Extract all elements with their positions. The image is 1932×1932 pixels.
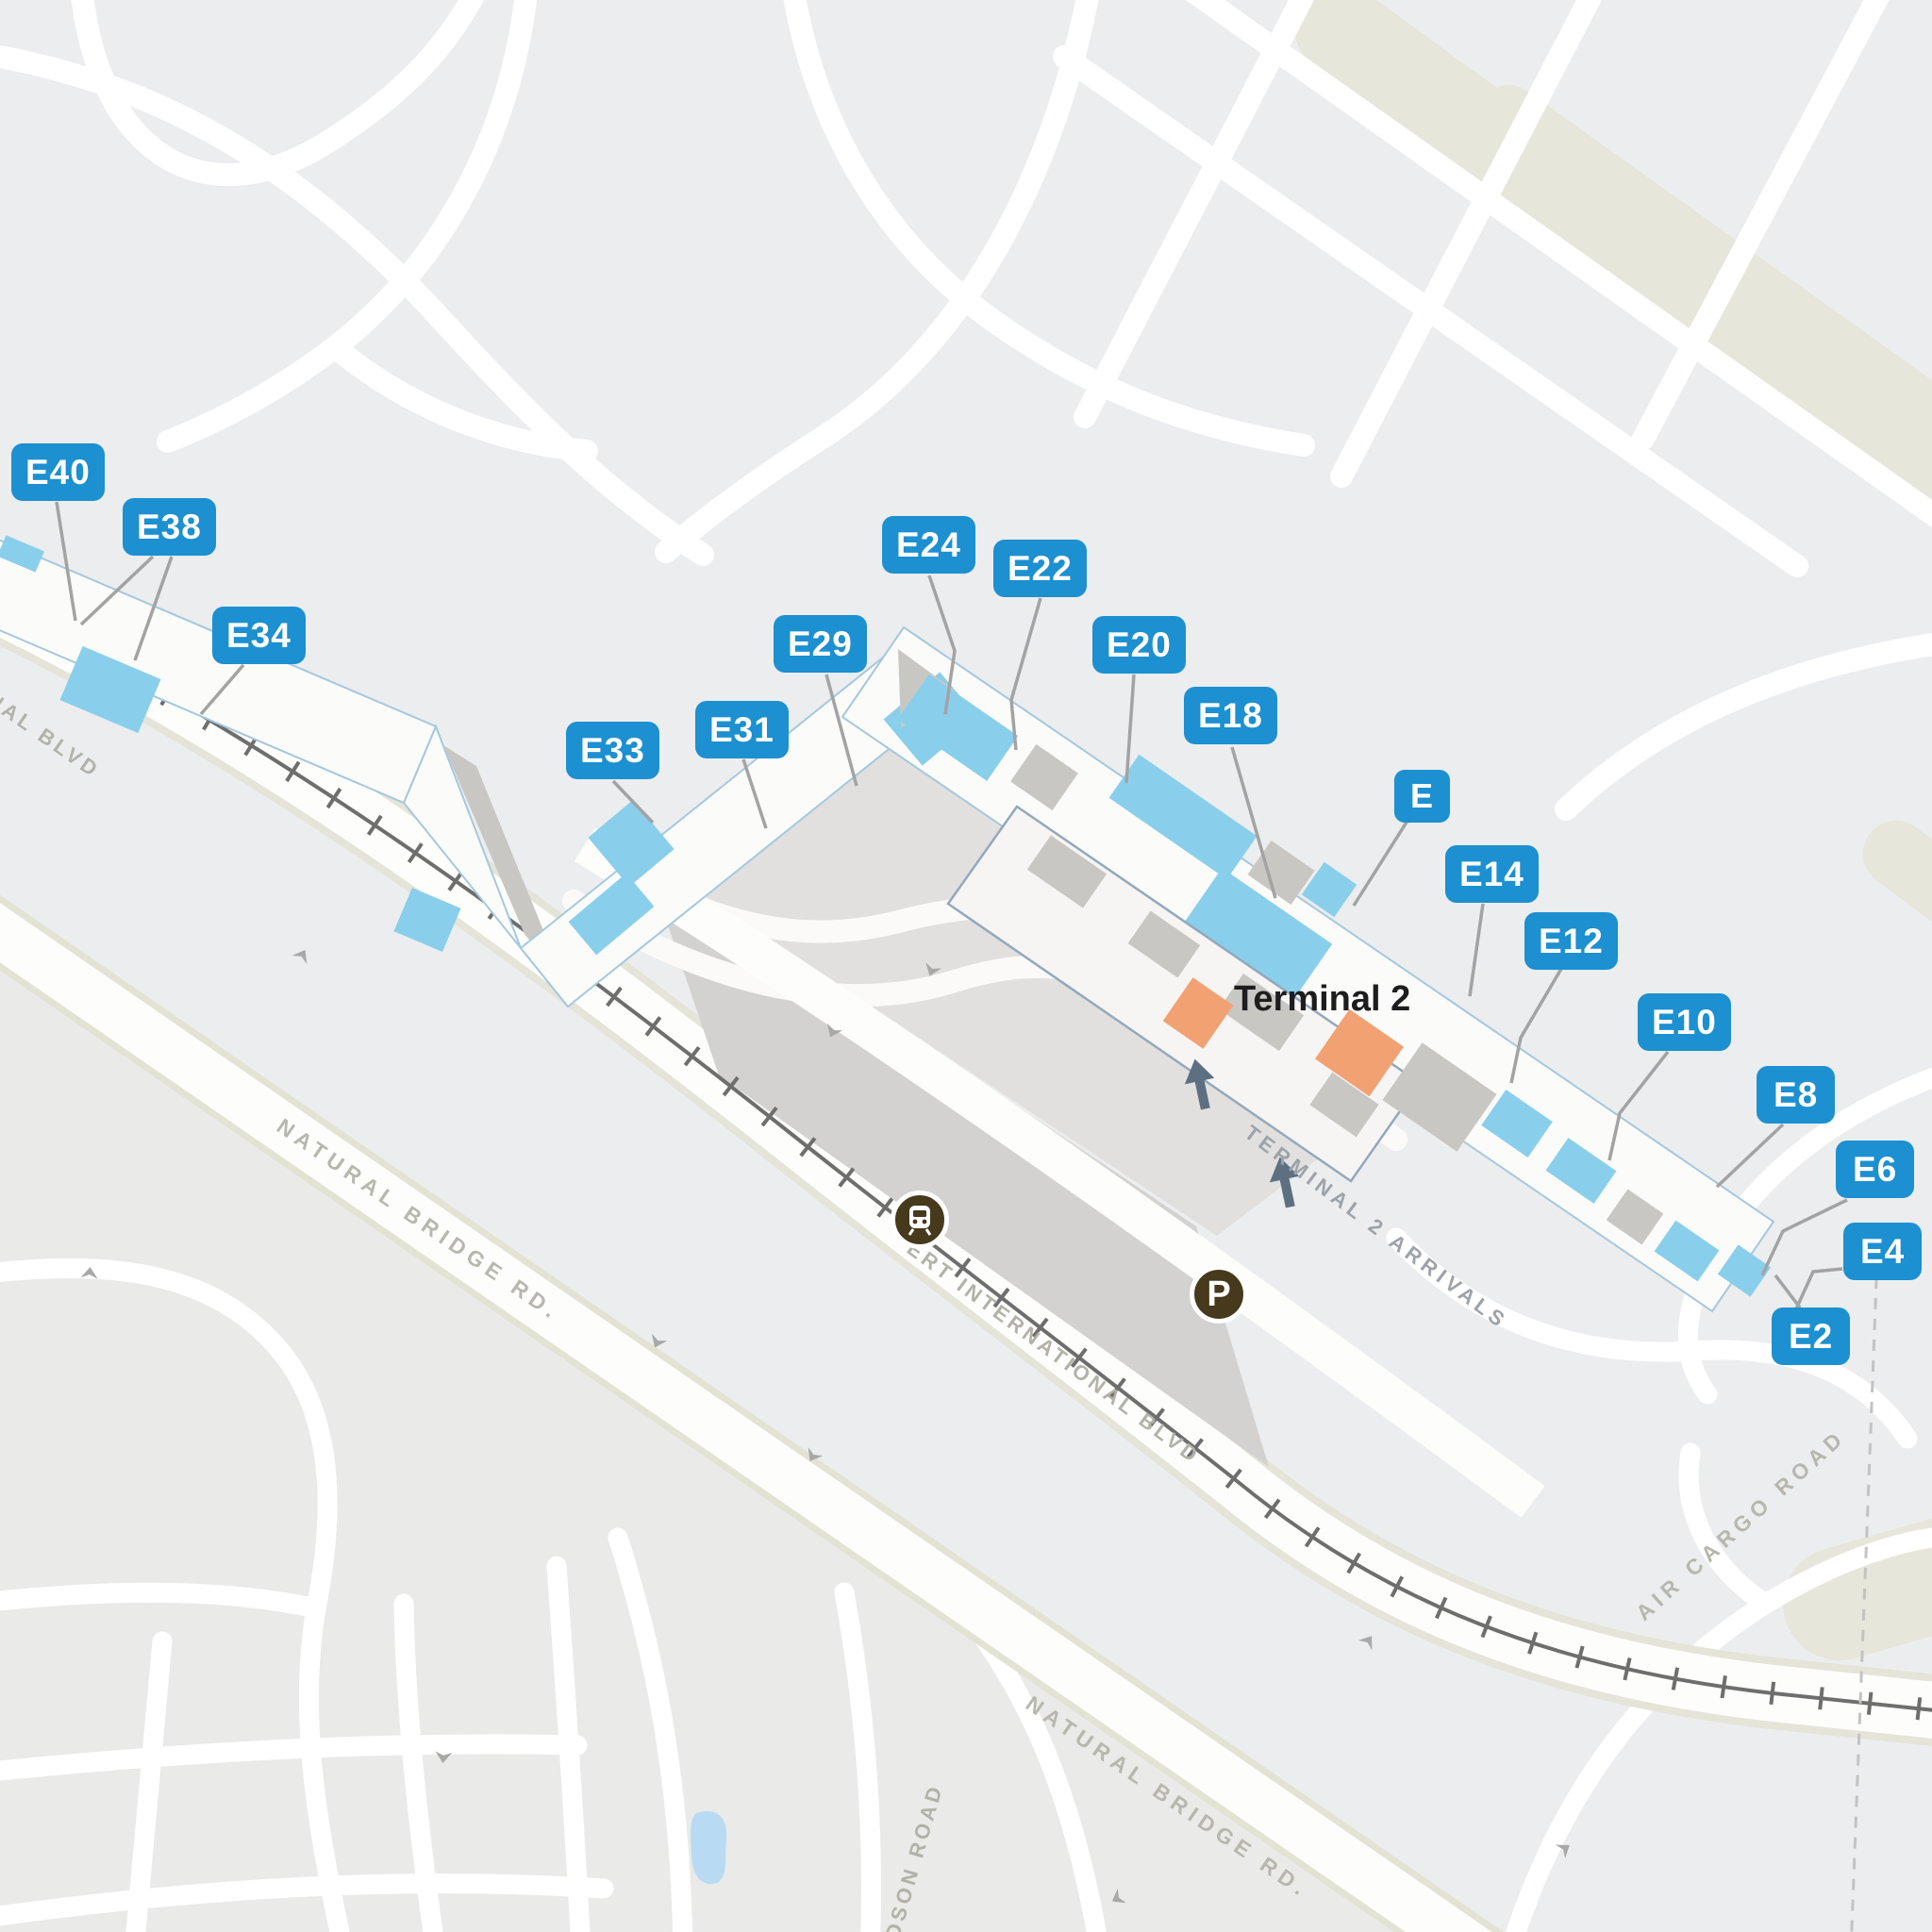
train-glyph [903,1203,937,1237]
gate-badge-e18: E18 [1184,687,1277,744]
gate-badge-e24: E24 [882,516,975,574]
gate-badge-e10: E10 [1638,993,1731,1051]
gate-badge-e2: E2 [1772,1307,1850,1365]
gate-badge-e12: E12 [1524,912,1618,970]
terminal-2-label: Terminal 2 [1234,979,1410,1020]
parking-letter: P [1207,1276,1230,1312]
gate-badge-e6: E6 [1836,1141,1914,1198]
gate-badge-e22: E22 [993,540,1087,597]
train-station-icon [891,1191,949,1249]
gate-badge-e20: E20 [1092,616,1186,674]
gate-badge-e34: E34 [212,607,306,664]
gate-badge-e29: E29 [774,615,867,673]
gate-badge-e8: E8 [1757,1066,1835,1124]
gate-badge-e38: E38 [123,498,216,556]
map-artwork [0,0,1932,1932]
gate-badge-e4: E4 [1843,1223,1922,1280]
parking-icon: P [1190,1265,1248,1324]
gate-badge-e33: E33 [566,722,659,779]
gate-badge-e31: E31 [695,701,789,758]
gate-badge-e40: E40 [11,443,105,501]
concourse-badge-e: E [1394,770,1450,823]
map-canvas[interactable]: NAL BLVD NATURAL BRIDGE RD. ERT INTERNAT… [0,0,1932,1932]
gate-badge-e14: E14 [1445,845,1539,903]
